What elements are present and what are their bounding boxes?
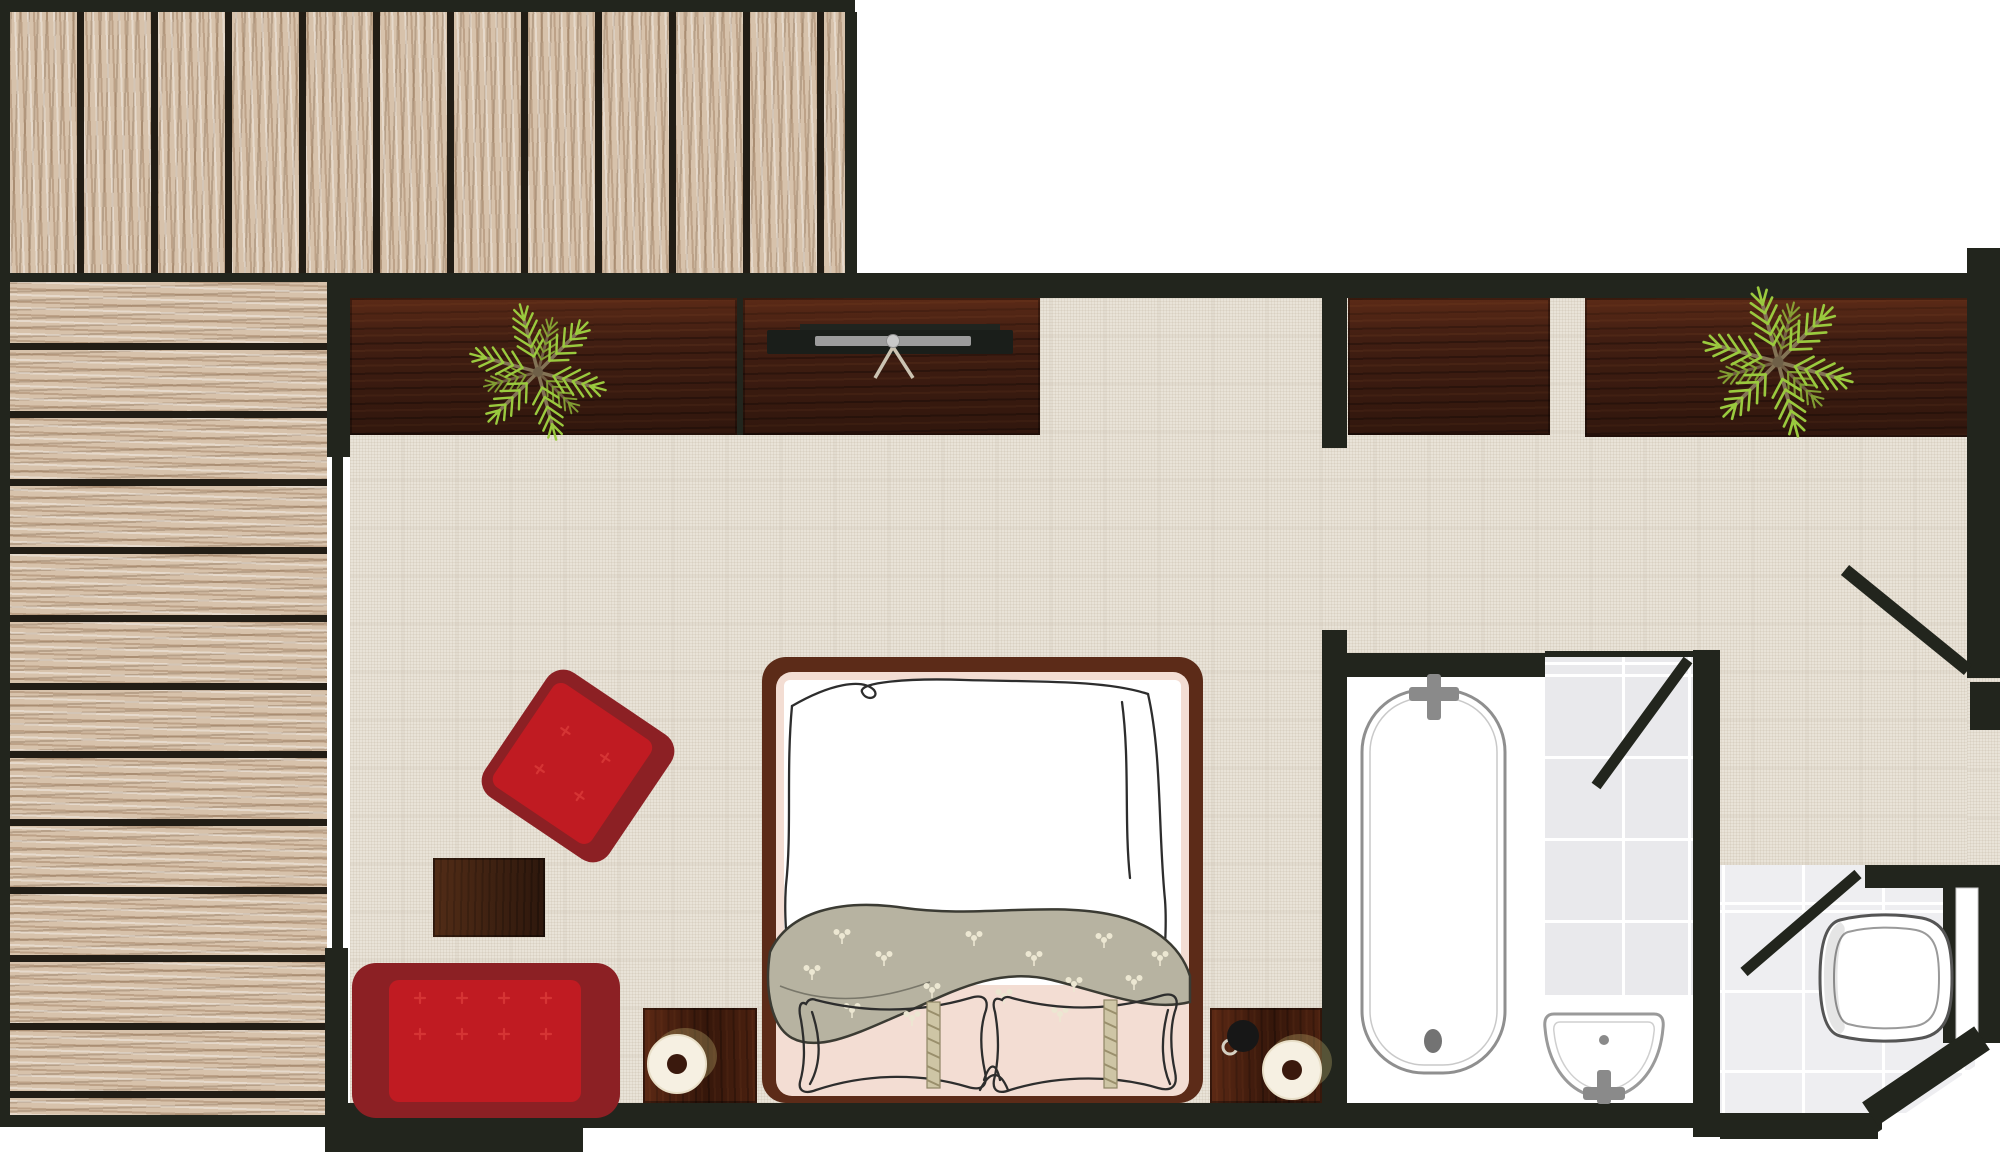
red-armchair xyxy=(474,662,682,870)
potted-plant-right xyxy=(1700,284,1856,440)
red-sofa xyxy=(352,963,620,1118)
floor-plan xyxy=(0,0,2000,1152)
coffee-mug xyxy=(1223,1020,1259,1054)
flat-tv xyxy=(767,324,1013,378)
toilet xyxy=(1820,915,1952,1041)
bathtub xyxy=(1362,674,1505,1073)
fixtures-overlay xyxy=(0,0,2000,1152)
wc-window xyxy=(1956,888,1978,1040)
entrance-door xyxy=(1845,570,1968,670)
basin-drain xyxy=(1599,1035,1609,1045)
tv-mount-knob xyxy=(887,335,900,348)
table-lamp-right xyxy=(1263,1034,1332,1099)
shower-door xyxy=(1596,660,1688,786)
table-lamp-left xyxy=(648,1028,717,1093)
potted-plant-left xyxy=(467,301,609,443)
washbasin xyxy=(1545,1014,1663,1104)
tub-drain xyxy=(1424,1029,1442,1053)
double-bed xyxy=(762,657,1203,1103)
